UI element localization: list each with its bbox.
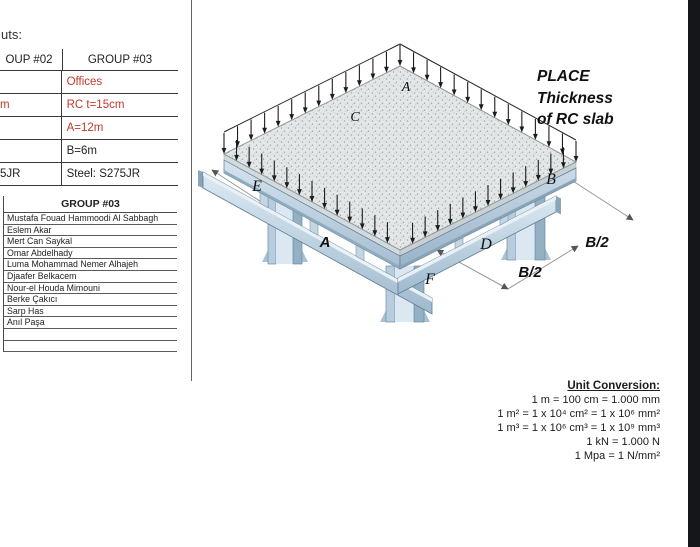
unit-conversion-line: 1 m = 100 cm = 1.000 mm (497, 393, 660, 407)
label-b: B (546, 171, 556, 188)
document-page: uts: OUP #02 GROUP #03 Offices m RC t=15… (0, 0, 700, 547)
unit-conversion-line: 1 Mpa = 1 N/mm² (497, 449, 660, 463)
label-e: E (251, 178, 262, 195)
unit-conversion-line: 1 m² = 1 x 10⁴ cm² = 1 x 10⁶ mm² (497, 407, 660, 421)
note-line-2: Thickness (537, 90, 613, 107)
place-thickness-note: PLACE Thickness of RC slab (537, 68, 614, 128)
unit-conversion-block: Unit Conversion: 1 m = 100 cm = 1.000 mm… (497, 379, 660, 463)
label-bay-a: A (319, 234, 331, 251)
label-d: D (479, 236, 492, 253)
unit-conversion-line: 1 m³ = 1 x 10⁶ cm³ = 1 x 10⁹ mm³ (497, 421, 660, 435)
note-line-3: of RC slab (537, 111, 614, 128)
structure-diagram: A C E B A D F B/2 B/2 PLACE Thickness of… (0, 0, 700, 547)
note-line-1: PLACE (537, 68, 590, 85)
right-black-bar (688, 0, 700, 547)
unit-conversion-line: 1 kN = 1.000 N (497, 435, 660, 449)
label-b2-upper: B/2 (585, 234, 609, 251)
unit-conversion-title: Unit Conversion: (497, 379, 660, 393)
slab-label-a: A (401, 80, 411, 95)
label-f: F (424, 271, 435, 288)
label-b2-lower: B/2 (518, 264, 542, 281)
slab-label-c: C (350, 110, 360, 125)
